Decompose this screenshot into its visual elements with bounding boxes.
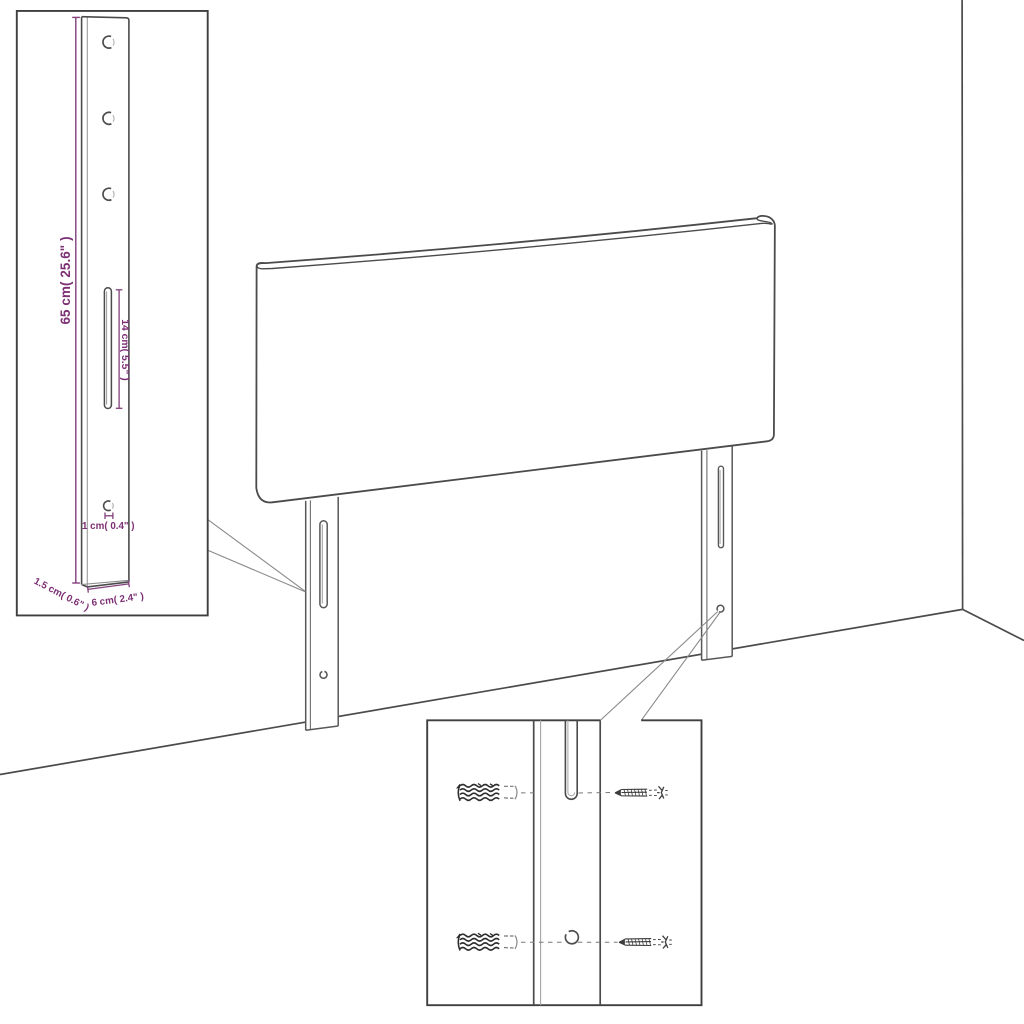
svg-text:14 cm( 5.5" ): 14 cm( 5.5" ) bbox=[119, 319, 130, 381]
svg-text:65 cm( 25.6" ): 65 cm( 25.6" ) bbox=[58, 236, 73, 324]
svg-text:1 cm( 0.4" ): 1 cm( 0.4" ) bbox=[82, 521, 135, 532]
